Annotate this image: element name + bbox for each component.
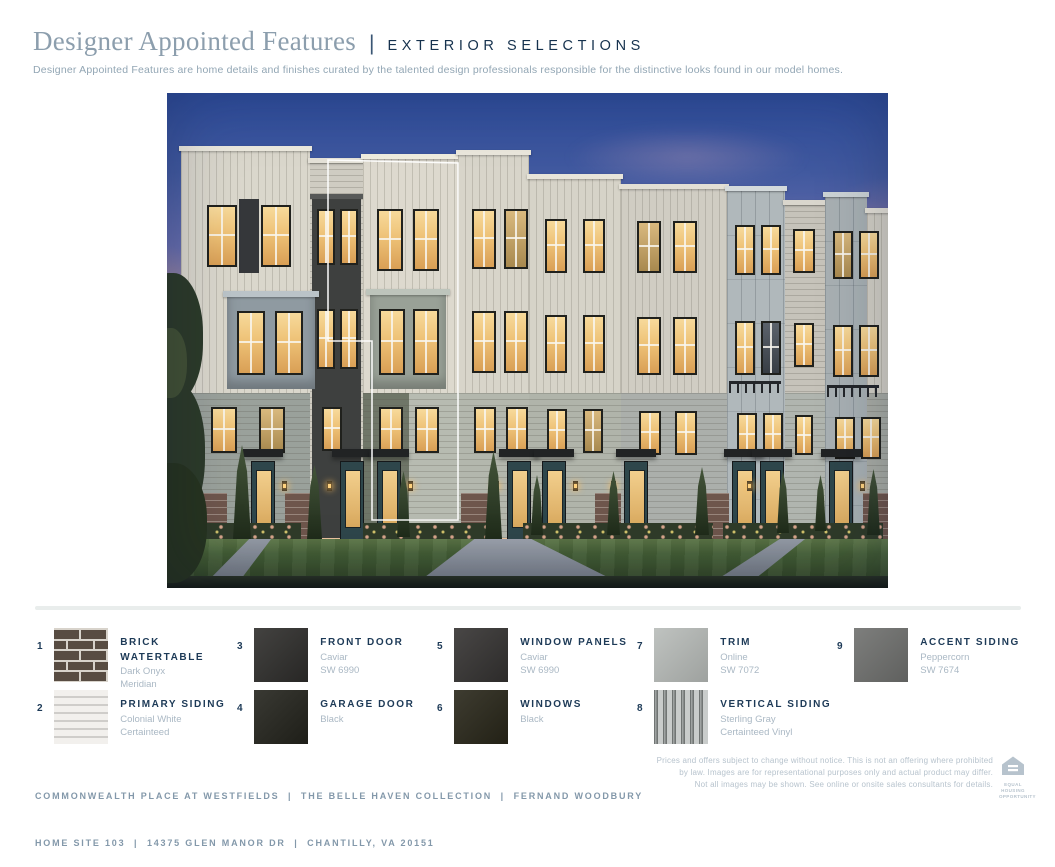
vertical-siding-swatch — [654, 690, 708, 744]
windows-swatch — [454, 690, 508, 744]
front-door-swatch — [254, 628, 308, 682]
selection-number: 9 — [837, 628, 854, 652]
brick-swatch — [54, 628, 108, 682]
selection-number: 3 — [237, 628, 254, 652]
page-header: Designer Appointed Features | EXTERIOR S… — [33, 26, 843, 76]
selection-detail: Black — [520, 713, 637, 726]
selection-number: 6 — [437, 690, 454, 714]
selection-number: 1 — [37, 628, 54, 652]
disclaimer-line: Not all images may be shown. See online … — [633, 779, 993, 791]
disclaimer-line: Prices and offers subject to change with… — [633, 755, 993, 767]
selection-detail: Dark Onyx — [120, 665, 237, 678]
selection-item-accent-siding: 9 ACCENT SIDING Peppercorn SW 7674 — [837, 628, 1037, 690]
selection-name: WINDOWS — [520, 698, 637, 713]
selection-detail: Certainteed — [120, 726, 237, 739]
selection-detail: Caviar — [520, 651, 637, 664]
selection-item-windows: 6 WINDOWS Black — [437, 690, 637, 752]
selection-name: PRIMARY SIDING — [120, 698, 237, 713]
selection-number: 4 — [237, 690, 254, 714]
selection-detail: Sterling Gray — [720, 713, 837, 726]
selection-detail: SW 7072 — [720, 664, 837, 677]
selection-name: TRIM — [720, 636, 837, 651]
selection-item-brick-watertable: 1 BRICK WATERTABLE Dark Onyx Meridian — [37, 628, 237, 690]
footer-line-1: COMMONWEALTH PLACE AT WESTFIELDS | THE B… — [35, 789, 643, 805]
selection-name: GARAGE DOOR — [320, 698, 437, 713]
equal-housing-logo: EQUAL HOUSING OPPORTUNITY — [999, 756, 1027, 800]
selection-detail: Caviar — [320, 651, 437, 664]
trim-swatch — [654, 628, 708, 682]
highlighted-home-outline — [167, 93, 888, 588]
selection-item-window-panels: 5 WINDOW PANELS Caviar SW 6990 — [437, 628, 637, 690]
selection-detail: Certainteed Vinyl — [720, 726, 837, 739]
selection-name: BRICK WATERTABLE — [120, 636, 237, 665]
selection-name: VERTICAL SIDING — [720, 698, 837, 713]
selection-detail: Peppercorn — [920, 651, 1037, 664]
garage-door-swatch — [254, 690, 308, 744]
disclaimer-line: by law. Images are for representational … — [633, 767, 993, 779]
footer-line-2: HOME SITE 103 | 14375 GLEN MANOR DR | CH… — [35, 836, 643, 852]
selection-number: 2 — [37, 690, 54, 714]
page-description: Designer Appointed Features are home det… — [33, 64, 843, 76]
selection-detail: Colonial White — [120, 713, 237, 726]
exterior-rendering-image — [167, 93, 888, 588]
selection-number: 5 — [437, 628, 454, 652]
selection-item-primary-siding: 2 PRIMARY SIDING Colonial White Certaint… — [37, 690, 237, 752]
selection-detail: SW 6990 — [320, 664, 437, 677]
footer-community-info: COMMONWEALTH PLACE AT WESTFIELDS | THE B… — [35, 757, 643, 867]
selection-item-garage-door: 4 GARAGE DOOR Black — [237, 690, 437, 752]
selection-item-trim: 7 TRIM Online SW 7072 — [637, 628, 837, 690]
selection-number: 8 — [637, 690, 654, 714]
page-title: Designer Appointed Features — [33, 26, 356, 57]
title-row: Designer Appointed Features | EXTERIOR S… — [33, 26, 843, 57]
page-subtitle-caps: EXTERIOR SELECTIONS — [388, 38, 645, 54]
section-divider — [35, 606, 1021, 610]
equal-housing-house-icon — [1001, 756, 1025, 776]
selection-name: WINDOW PANELS — [520, 636, 637, 651]
selection-name: FRONT DOOR — [320, 636, 437, 651]
horizontal-siding-swatch — [54, 690, 108, 744]
selection-name: ACCENT SIDING — [920, 636, 1037, 651]
selection-detail: SW 6990 — [520, 664, 637, 677]
selection-detail: Black — [320, 713, 437, 726]
exterior-selections-legend: 1 BRICK WATERTABLE Dark Onyx Meridian 2 … — [37, 628, 1037, 752]
selection-detail: SW 7674 — [920, 664, 1037, 677]
selection-number: 7 — [637, 628, 654, 652]
selection-item-front-door: 3 FRONT DOOR Caviar SW 6990 — [237, 628, 437, 690]
window-panels-swatch — [454, 628, 508, 682]
selection-detail: Online — [720, 651, 837, 664]
legal-disclaimer: Prices and offers subject to change with… — [633, 755, 993, 791]
equal-housing-label: EQUAL HOUSING OPPORTUNITY — [999, 782, 1027, 800]
title-separator: | — [369, 32, 374, 56]
brochure-page: { "header": { "title": "Designer Appoint… — [0, 0, 1055, 815]
selection-item-vertical-siding: 8 VERTICAL SIDING Sterling Gray Certaint… — [637, 690, 837, 752]
accent-siding-swatch — [854, 628, 908, 682]
